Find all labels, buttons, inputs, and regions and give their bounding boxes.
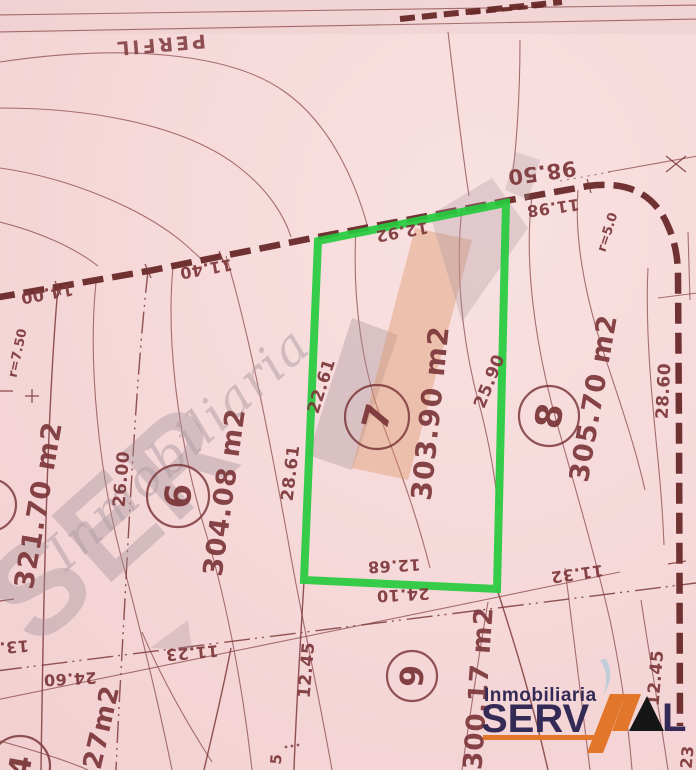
plat-map: SER Inmobiliaria PERFIL98.5011.9812.9211… [0, 0, 696, 770]
lot-number: 9 [392, 663, 432, 688]
dim-label: 24.60 [43, 668, 97, 690]
logo-suffix: L [662, 696, 686, 740]
dim-label: 23 [677, 745, 696, 770]
dim-label: 28.60 [652, 362, 675, 419]
dim-label: 13. [0, 636, 30, 658]
logo-underline [483, 735, 600, 740]
dim-label: 12.68 [367, 555, 421, 577]
dim-label: 5 [267, 753, 286, 765]
dim-label: 24.10 [376, 584, 430, 606]
plat-map-photo: SER Inmobiliaria PERFIL98.5011.9812.9211… [0, 0, 696, 770]
paper-top-strip [0, 0, 696, 34]
logo-line2: SERV [481, 697, 590, 741]
lot-number: 6 [158, 482, 201, 511]
